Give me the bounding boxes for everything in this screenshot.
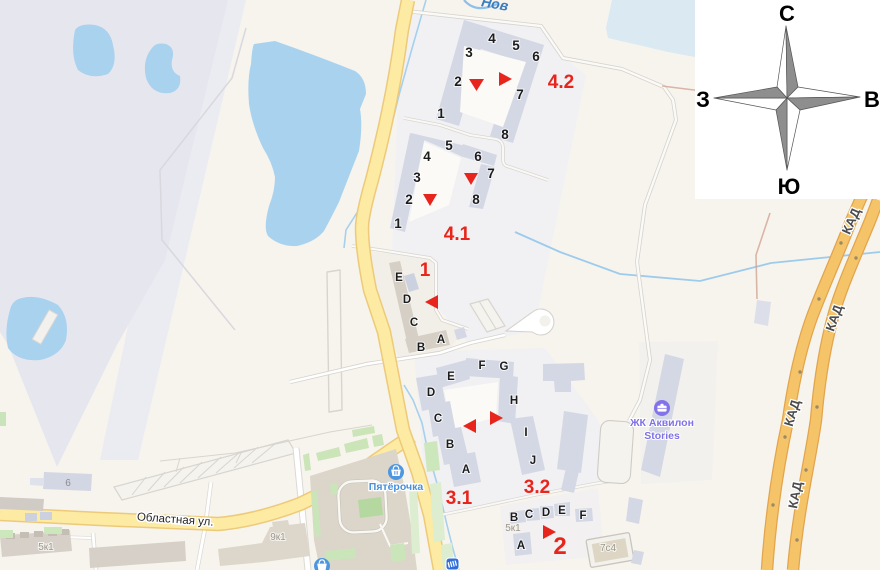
svg-text:Пятёрочка: Пятёрочка — [369, 481, 424, 493]
svg-text:F: F — [478, 360, 485, 372]
svg-text:A: A — [517, 540, 525, 552]
svg-text:2: 2 — [454, 74, 462, 89]
svg-text:ЖК Аквилон: ЖК Аквилон — [629, 417, 694, 429]
svg-text:9к1: 9к1 — [270, 532, 286, 543]
svg-text:1: 1 — [437, 106, 445, 121]
svg-text:3: 3 — [413, 170, 421, 185]
svg-text:5: 5 — [512, 38, 520, 53]
svg-text:C: C — [434, 413, 442, 425]
svg-text:Stories: Stories — [644, 430, 680, 442]
svg-text:5к1: 5к1 — [38, 542, 54, 553]
svg-text:5: 5 — [445, 138, 453, 153]
svg-text:H: H — [510, 395, 518, 407]
svg-text:5к1: 5к1 — [505, 523, 521, 534]
svg-text:3.2: 3.2 — [524, 477, 550, 498]
svg-text:I: I — [524, 427, 527, 439]
svg-text:2: 2 — [405, 192, 413, 207]
svg-text:4: 4 — [423, 149, 431, 164]
svg-text:6: 6 — [532, 49, 540, 64]
svg-text:В: В — [864, 87, 880, 112]
svg-text:2: 2 — [553, 533, 566, 560]
svg-text:E: E — [558, 505, 566, 517]
svg-text:7: 7 — [516, 87, 524, 102]
svg-text:З: З — [696, 87, 710, 112]
svg-text:D: D — [403, 294, 411, 306]
svg-text:E: E — [395, 272, 403, 284]
svg-text:A: A — [462, 464, 470, 476]
svg-text:6: 6 — [65, 478, 71, 489]
svg-text:3.1: 3.1 — [446, 488, 473, 509]
svg-text:8: 8 — [501, 127, 509, 142]
svg-text:Ю: Ю — [778, 174, 801, 199]
svg-text:1: 1 — [420, 260, 431, 281]
svg-text:C: C — [410, 317, 418, 329]
svg-text:F: F — [579, 510, 586, 522]
svg-text:6: 6 — [474, 149, 482, 164]
svg-text:1: 1 — [394, 216, 402, 231]
svg-text:B: B — [417, 342, 425, 354]
svg-text:7: 7 — [487, 166, 495, 181]
svg-text:7с4: 7с4 — [600, 543, 617, 554]
svg-text:B: B — [446, 439, 454, 451]
svg-text:8: 8 — [472, 192, 480, 207]
svg-text:J: J — [530, 455, 536, 467]
svg-text:3: 3 — [465, 45, 473, 60]
svg-text:4.1: 4.1 — [444, 224, 471, 245]
svg-text:E: E — [447, 371, 455, 383]
svg-text:C: C — [525, 509, 533, 521]
svg-text:G: G — [500, 361, 509, 373]
svg-text:D: D — [427, 387, 435, 399]
svg-text:A: A — [437, 334, 445, 346]
svg-text:С: С — [779, 1, 795, 26]
svg-text:4.2: 4.2 — [548, 72, 574, 93]
svg-text:D: D — [542, 507, 550, 519]
svg-text:4: 4 — [488, 31, 496, 46]
